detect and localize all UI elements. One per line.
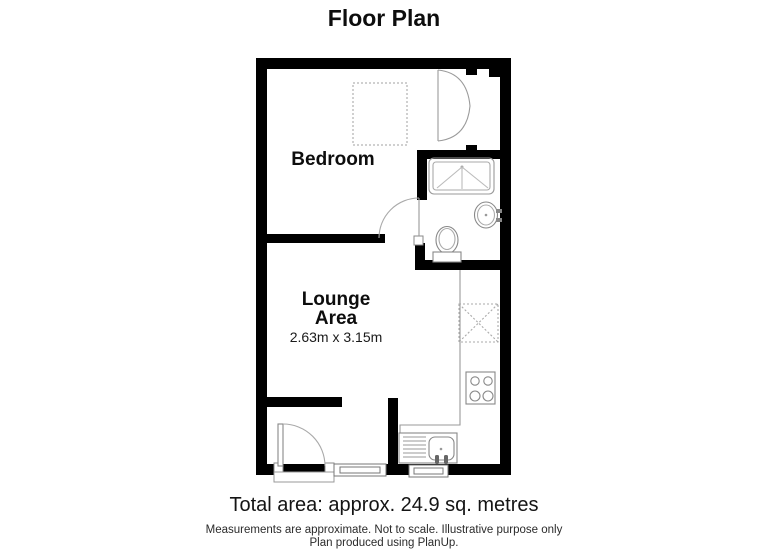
floor-plan-drawing xyxy=(0,0,768,558)
wall-cabinet-icon xyxy=(459,304,498,342)
floor-plan-page: Floor Plan xyxy=(0,0,768,558)
wall-entry-stub xyxy=(267,397,342,407)
wardrobe-door-arc-top xyxy=(438,70,470,106)
hob-outline xyxy=(466,372,495,404)
walls xyxy=(256,58,511,475)
entry-door-arc xyxy=(283,424,325,466)
shower-spray-right xyxy=(462,167,488,188)
basin-tap-top xyxy=(496,209,502,213)
entry-door-icon xyxy=(278,424,325,466)
basin-drain-dot xyxy=(485,214,488,217)
wall-bedroom-divider xyxy=(267,234,385,243)
bathroom-door-arc xyxy=(379,198,419,238)
entry-door-leaf xyxy=(278,424,283,466)
wall-corner-pier xyxy=(489,69,500,77)
hob-burner-1 xyxy=(471,377,479,385)
hob-icon xyxy=(466,372,495,404)
entry-threshold xyxy=(274,472,334,482)
window-glazing xyxy=(340,467,380,473)
shower-icon xyxy=(429,158,494,194)
disclaimer-line-1: Measurements are approximate. Not to sca… xyxy=(0,524,768,536)
toilet-cistern xyxy=(433,252,461,262)
bathroom-door-hinge xyxy=(414,236,423,245)
wall-wardrobe-jamb-top xyxy=(466,69,477,75)
toilet-bowl-inner xyxy=(439,229,455,250)
lounge-label: Lounge Area 2.63m x 3.15m xyxy=(266,290,406,345)
window-glazing xyxy=(414,468,443,474)
kitchen-counter-line xyxy=(400,270,460,433)
wall-wardrobe-jamb-bottom xyxy=(466,145,477,151)
window-icon xyxy=(334,464,386,476)
wall-top xyxy=(256,58,511,69)
lounge-dimensions: 2.63m x 3.15m xyxy=(266,330,406,345)
hob-burner-2 xyxy=(484,377,492,385)
wall-kitchen-stub xyxy=(388,398,398,464)
wardrobe-door-arc-bottom xyxy=(438,106,470,141)
toilet-icon xyxy=(433,227,461,263)
wardrobe-double-door-icon xyxy=(438,70,470,141)
lounge-label-line1: Lounge xyxy=(266,290,406,309)
total-area-text: Total area: approx. 24.9 sq. metres xyxy=(0,494,768,517)
wall-left xyxy=(256,58,267,475)
window-icon-2 xyxy=(409,465,448,477)
kitchen-sink-icon xyxy=(399,433,457,464)
hob-burner-4 xyxy=(483,391,493,401)
bathroom-door-icon xyxy=(379,198,419,238)
disclaimer-line-2: Plan produced using PlanUp. xyxy=(0,537,768,549)
basin-icon xyxy=(475,202,503,228)
wall-right xyxy=(500,58,511,475)
sink-tap-left xyxy=(435,455,439,464)
shower-spray-left xyxy=(437,167,462,188)
sink-tap-right xyxy=(444,455,448,464)
hob-burner-3 xyxy=(470,391,480,401)
sink-drain-dot xyxy=(440,448,443,451)
basin-tap-bottom xyxy=(496,218,502,222)
wall-bathroom-west-upper xyxy=(417,150,427,200)
bed-icon xyxy=(353,83,407,145)
bedroom-label: Bedroom xyxy=(263,150,403,169)
lounge-label-line2: Area xyxy=(266,309,406,328)
